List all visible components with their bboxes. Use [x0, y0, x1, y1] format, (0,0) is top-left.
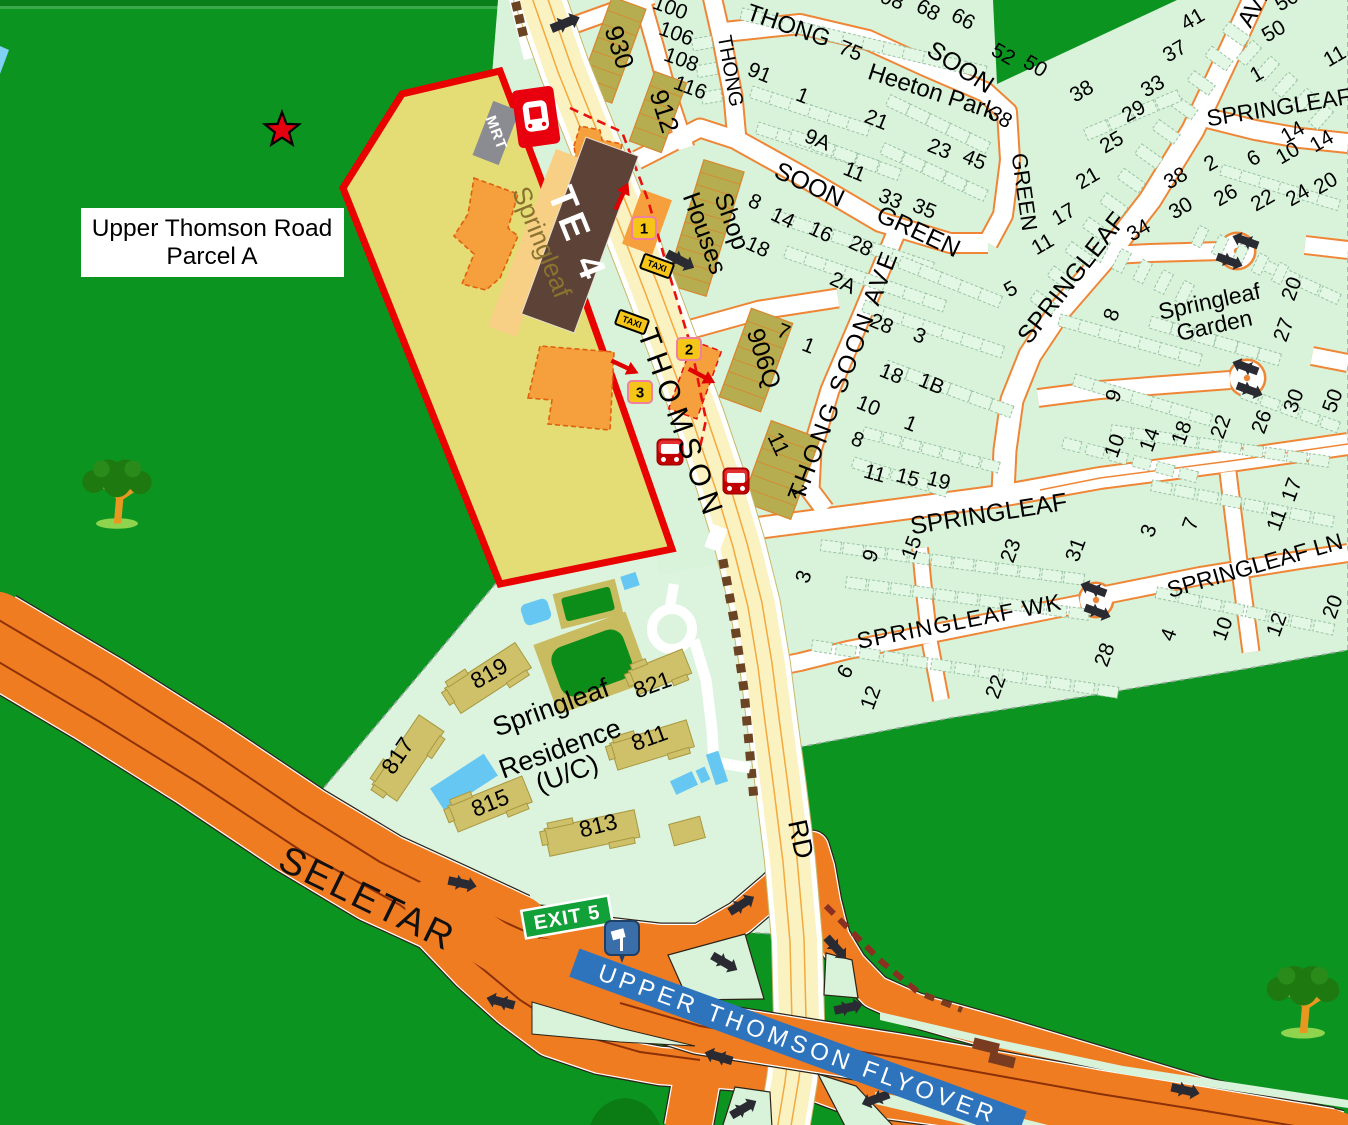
svg-text:Parcel A: Parcel A [166, 243, 258, 270]
svg-text:3: 3 [636, 385, 644, 402]
svg-text:Upper Thomson Road: Upper Thomson Road [92, 215, 333, 242]
svg-text:2: 2 [685, 342, 693, 359]
svg-text:1: 1 [640, 221, 648, 238]
